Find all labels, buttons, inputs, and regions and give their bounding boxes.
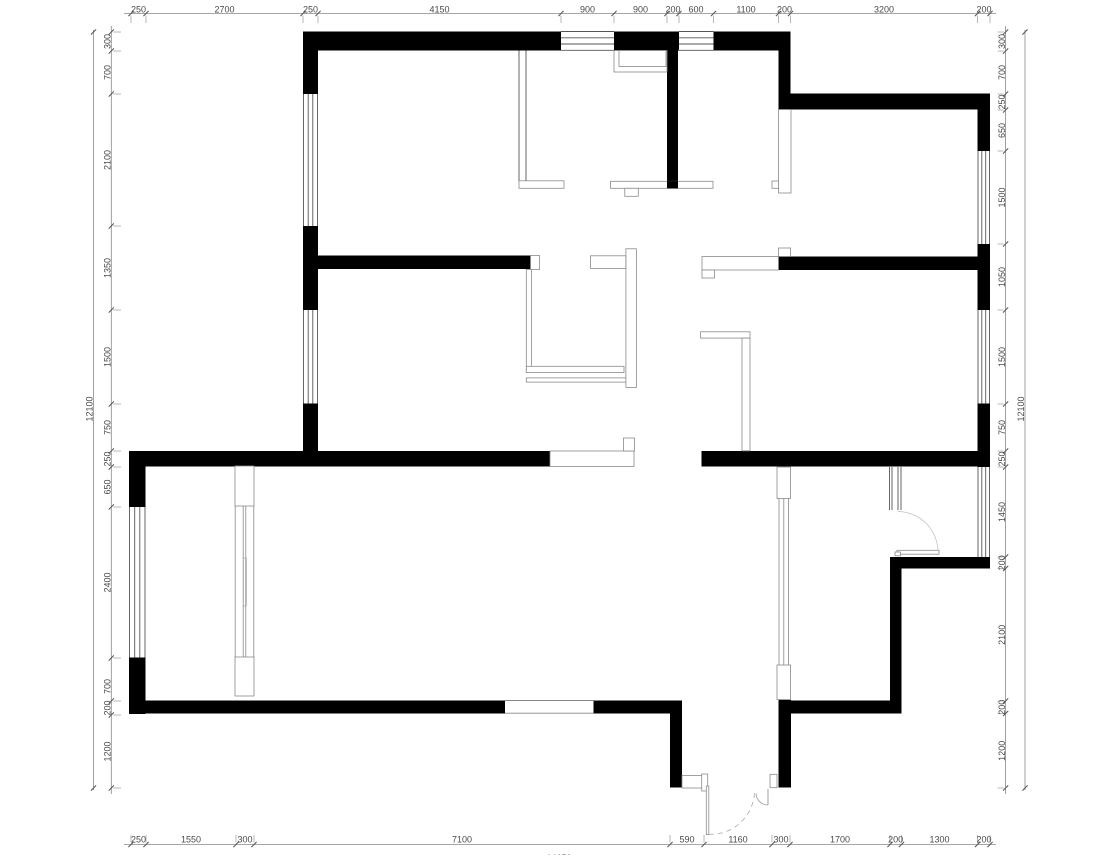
- svg-text:250: 250: [303, 4, 318, 14]
- svg-text:200: 200: [997, 700, 1007, 715]
- svg-text:1050: 1050: [997, 267, 1007, 287]
- svg-text:4150: 4150: [429, 4, 449, 14]
- svg-text:1200: 1200: [997, 741, 1007, 761]
- svg-text:600: 600: [688, 4, 703, 14]
- svg-text:300: 300: [773, 835, 788, 845]
- svg-text:200: 200: [777, 4, 792, 14]
- svg-text:750: 750: [102, 420, 112, 435]
- svg-text:250: 250: [102, 451, 112, 466]
- svg-text:1100: 1100: [736, 4, 755, 14]
- svg-text:1350: 1350: [102, 258, 112, 278]
- svg-text:200: 200: [102, 700, 112, 715]
- svg-text:2400: 2400: [102, 572, 112, 592]
- svg-text:650: 650: [997, 123, 1007, 138]
- svg-text:1500: 1500: [997, 347, 1007, 367]
- svg-text:1200: 1200: [102, 741, 112, 761]
- svg-text:1700: 1700: [830, 835, 850, 845]
- svg-text:3200: 3200: [874, 4, 894, 14]
- svg-text:250: 250: [131, 835, 146, 845]
- svg-text:250: 250: [131, 4, 146, 14]
- svg-text:1300: 1300: [929, 835, 949, 845]
- svg-text:200: 200: [976, 4, 991, 14]
- svg-text:200: 200: [665, 4, 680, 14]
- svg-text:650: 650: [102, 479, 112, 494]
- svg-text:12100: 12100: [85, 396, 95, 421]
- svg-text:1160: 1160: [728, 835, 747, 845]
- svg-text:700: 700: [102, 679, 112, 694]
- svg-text:700: 700: [997, 65, 1007, 80]
- svg-text:900: 900: [633, 4, 648, 14]
- svg-text:250: 250: [997, 451, 1007, 466]
- svg-text:700: 700: [102, 65, 112, 80]
- svg-text:2700: 2700: [214, 4, 234, 14]
- svg-text:200: 200: [888, 835, 903, 845]
- svg-text:300: 300: [997, 34, 1007, 49]
- svg-text:250: 250: [997, 94, 1007, 109]
- svg-text:300: 300: [237, 835, 252, 845]
- svg-text:200: 200: [976, 835, 991, 845]
- svg-text:750: 750: [997, 420, 1007, 435]
- svg-text:12100: 12100: [1016, 396, 1026, 421]
- svg-text:200: 200: [997, 555, 1007, 570]
- svg-text:2100: 2100: [997, 625, 1007, 645]
- svg-text:1500: 1500: [102, 347, 112, 367]
- svg-text:590: 590: [679, 835, 694, 845]
- svg-text:7100: 7100: [452, 835, 472, 845]
- svg-text:2100: 2100: [102, 150, 112, 170]
- svg-text:300: 300: [102, 34, 112, 49]
- svg-text:1450: 1450: [997, 502, 1007, 522]
- svg-text:1500: 1500: [997, 187, 1007, 207]
- svg-text:900: 900: [580, 4, 595, 14]
- svg-text:1550: 1550: [181, 835, 201, 845]
